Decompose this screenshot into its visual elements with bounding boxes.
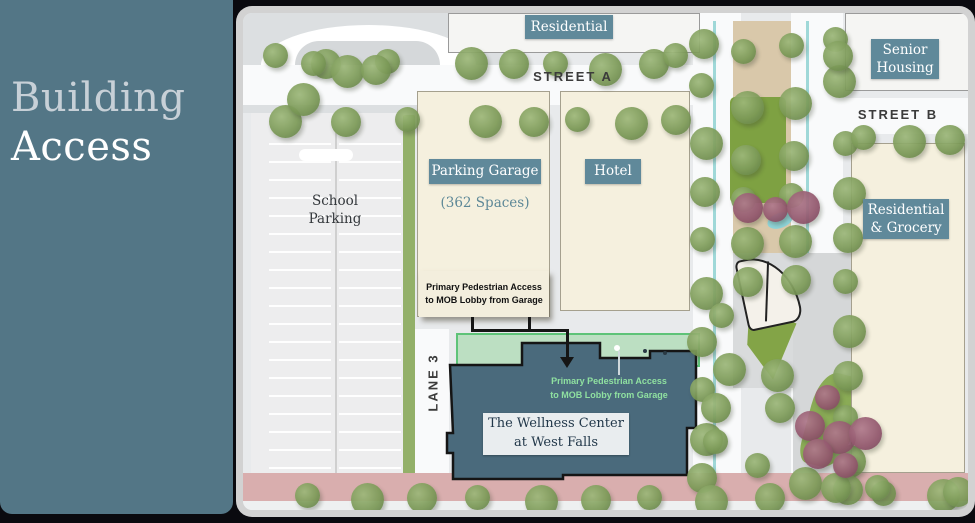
tree [761,359,794,392]
residential-label: Residential [525,15,613,39]
tree [833,223,863,253]
tree [765,393,795,423]
tree [755,483,785,510]
hedge-strip [403,115,415,487]
tree [851,125,876,150]
tree [407,483,437,510]
street-a-label: STREET A [513,69,633,84]
tree [361,55,391,85]
note-line: to MOB Lobby from Garage [550,390,668,400]
tree [331,55,364,88]
pavilion-line [765,261,769,321]
tree [733,267,763,297]
tree [703,429,728,454]
tree [581,485,611,510]
note-line: Primary Pedestrian Access [551,376,667,386]
ornamental-tree [833,453,858,478]
tree [690,127,723,160]
tree [731,91,764,124]
ornamental-tree [733,193,763,223]
tree [295,483,320,508]
label-text: & Grocery [870,219,941,237]
tree [661,105,691,135]
tree [779,225,812,258]
tree [455,47,488,80]
tree [690,227,715,252]
access-dot [643,349,647,353]
tree [637,485,662,510]
connector-line [471,329,569,332]
tree [833,315,866,348]
label-text: School [312,193,358,209]
ornamental-tree [795,411,825,441]
tree [395,107,420,132]
senior-housing-label: Senior Housing [871,39,939,79]
tree [943,477,968,507]
tree [565,107,590,132]
title-panel: Building Access [0,0,233,514]
tree [713,353,746,386]
title-line-building: Building [11,74,186,123]
tree [823,41,853,71]
ornamental-tree [815,385,840,410]
tree [789,467,822,500]
tree [779,87,812,120]
tree [689,29,719,59]
ornamental-tree [803,439,833,469]
tree [687,327,717,357]
tree [781,265,811,295]
site-plan-card: Primary Pedestrian Access to MOB Lobby f… [236,6,975,517]
tree [525,485,558,510]
tree [701,393,731,423]
tree [465,485,490,510]
tree [745,453,770,478]
label-text: Hotel [594,162,632,180]
school-parking-label: School Parking [285,193,385,228]
tree [935,125,965,155]
garage-access-callout: Primary Pedestrian Access to MOB Lobby f… [419,271,549,317]
tree [833,361,863,391]
lobby-access-note: Primary Pedestrian Access to MOB Lobby f… [533,375,685,403]
label-text: Residential [531,18,608,36]
tree [779,33,804,58]
parking-garage-label: Parking Garage [429,159,541,184]
tree [779,141,809,171]
tree [519,107,549,137]
label-text: Parking [309,211,362,227]
callout-line: to MOB Lobby from Garage [425,294,543,308]
access-dot [663,351,667,355]
connector-line [566,329,569,359]
tree [865,475,890,500]
parking-garage-capacity: (362 Spaces) [429,195,541,211]
tree [331,107,361,137]
site-plan-map: Primary Pedestrian Access to MOB Lobby f… [243,13,968,510]
ornamental-tree [787,191,820,224]
wellness-center-label: The Wellness Center at West Falls [483,413,629,455]
leader-line [618,351,620,375]
ornamental-tree [849,417,882,450]
lot-divider [335,133,337,478]
tree [833,177,866,210]
hotel-label: Hotel [585,159,641,184]
title-line-access: Access [11,123,186,172]
callout-line: Primary Pedestrian Access [426,281,542,295]
street-b-label: STREET B [843,107,953,122]
label-text: The Wellness Center [483,415,629,434]
tree [615,107,648,140]
tree [695,485,728,510]
tree [690,177,720,207]
tree [709,303,734,328]
building-wellness-center [444,329,700,481]
lot-island [299,149,353,161]
tree [731,39,756,64]
access-arrow-icon [560,357,574,368]
tree [689,73,714,98]
lane-3-label: LANE 3 [426,343,441,423]
label-text: Senior [883,41,928,59]
tree [731,227,764,260]
label-text: Residential [868,201,945,219]
tree [301,51,326,76]
page-title: Building Access [11,74,186,172]
label-text: Housing [876,59,933,77]
tree [351,483,384,510]
tree [833,269,858,294]
tree [469,105,502,138]
tree [893,125,926,158]
residential-grocery-label: Residential & Grocery [863,199,949,239]
tree [731,145,761,175]
label-text: Parking Garage [431,162,538,180]
label-text: at West Falls [483,434,629,453]
school-parking-lot [251,113,411,491]
tree [287,83,320,116]
tree [663,43,688,68]
ornamental-tree [763,197,788,222]
tree [263,43,288,68]
